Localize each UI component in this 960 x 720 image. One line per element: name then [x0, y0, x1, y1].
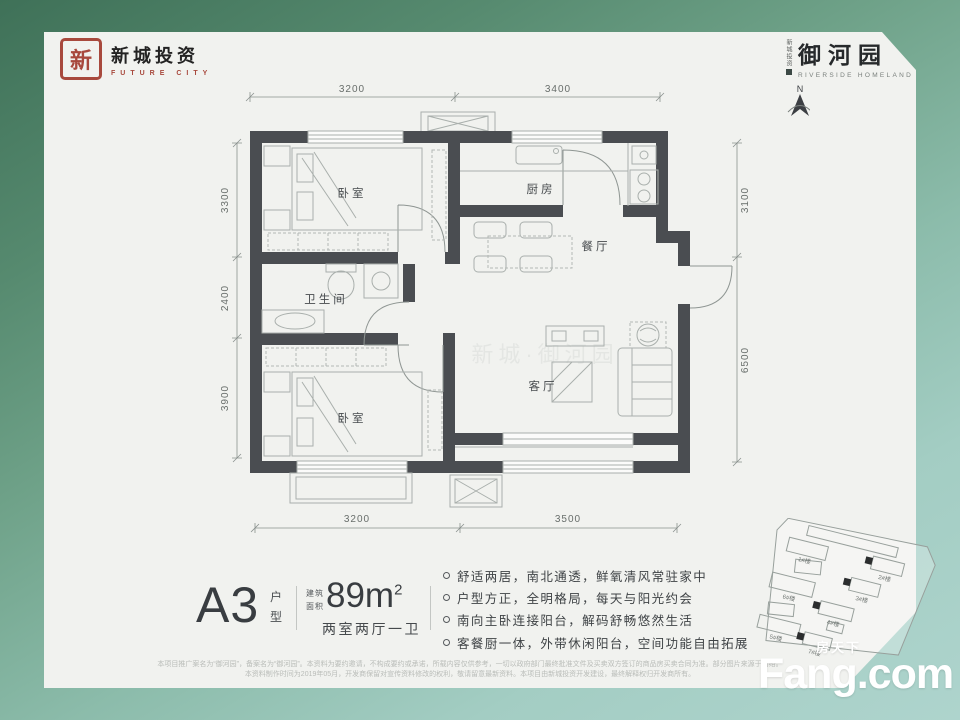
developer-name: 新城投资 — [111, 42, 212, 68]
bullet-icon — [443, 594, 450, 601]
bedroom-bottom-furniture — [264, 348, 442, 456]
dim-right-2: 6500 — [740, 347, 751, 373]
flue-box-bottom — [450, 475, 502, 507]
developer-seal-icon: 新 — [60, 38, 102, 80]
dim-left-2: 2400 — [220, 285, 231, 311]
fang-watermark-en: Fang.com — [758, 654, 953, 695]
room-label-bedroom-top: 卧室 — [338, 186, 367, 200]
feature-item: 南向主卧连接阳台，解码舒畅悠然生活 — [443, 609, 749, 631]
dining-furniture — [474, 222, 572, 272]
project-tagline: RIVERSIDE HOMELAND — [798, 72, 913, 79]
disclaimer-line-1: 本项目推广案名为“御河园”，备案名为“御河园”。本资料为要约邀请，不构成要约或承… — [70, 660, 870, 669]
fang-watermark: 房天下 Fang.com — [758, 642, 953, 695]
area-value: 89m2 — [326, 576, 402, 616]
unit-suffix: 户 型 — [270, 588, 282, 625]
bullet-icon — [443, 616, 450, 623]
dim-right-1: 3100 — [740, 187, 751, 213]
svg-text:N: N — [797, 84, 804, 94]
room-label-bathroom: 卫生间 — [304, 292, 348, 306]
dim-left-1: 3300 — [220, 187, 231, 213]
developer-logo: 新 新城投资 FUTURE CITY — [60, 38, 212, 80]
dim-top-2: 3400 — [545, 84, 571, 95]
seal-char: 新 — [70, 43, 92, 75]
dim-bottom-1: 3200 — [344, 514, 370, 525]
layout-text: 两室两厅一卫 — [322, 619, 421, 639]
room-label-kitchen: 厨房 — [527, 183, 556, 196]
floorplan-poster: { "brand": { "developer": {"seal_char": … — [0, 0, 960, 720]
room-label-bedroom-bottom: 卧室 — [338, 411, 367, 425]
room-label-living: 客厅 — [529, 379, 558, 393]
floorplan-drawing: 新城·御河园 — [185, 75, 810, 545]
living-furniture — [546, 322, 672, 416]
project-logo: 新城投资 御河园 RIVERSIDE HOMELAND — [784, 36, 913, 79]
bullet-icon — [443, 572, 450, 579]
feature-item: 舒适两居，南北通透，鲜氧清风常驻家中 — [443, 564, 749, 586]
feature-item: 客餐厨一体，外带休闲阳台，空间功能自由拓展 — [443, 631, 749, 653]
dim-left-3: 3900 — [220, 385, 231, 411]
dim-bottom-2: 3500 — [555, 514, 581, 525]
area-prefix: 建筑 面积 — [306, 588, 324, 612]
kitchen-fixtures — [460, 143, 658, 206]
dim-top-1: 3200 — [339, 84, 365, 95]
disclaimer-line-2: 本资料制作时间为2019年05月，开发商保留对宣传资料修改的权利，敬请留意最新资… — [70, 670, 870, 679]
room-label-dining: 餐厅 — [582, 239, 611, 253]
feature-list: 舒适两居，南北通透，鲜氧清风常驻家中 户型方正，全明格局，每天与阳光约会 南向主… — [443, 564, 749, 654]
unit-code: A3 — [196, 576, 259, 634]
divider-1 — [296, 586, 297, 630]
project-name: 御河园 — [798, 36, 913, 70]
bay-window — [290, 473, 412, 503]
divider-2 — [430, 586, 431, 630]
feature-item: 户型方正，全明格局，每天与阳光约会 — [443, 586, 749, 608]
compass-icon: N — [788, 84, 810, 116]
bullet-icon — [443, 639, 450, 646]
project-side-text: 新城投资 — [784, 39, 793, 67]
